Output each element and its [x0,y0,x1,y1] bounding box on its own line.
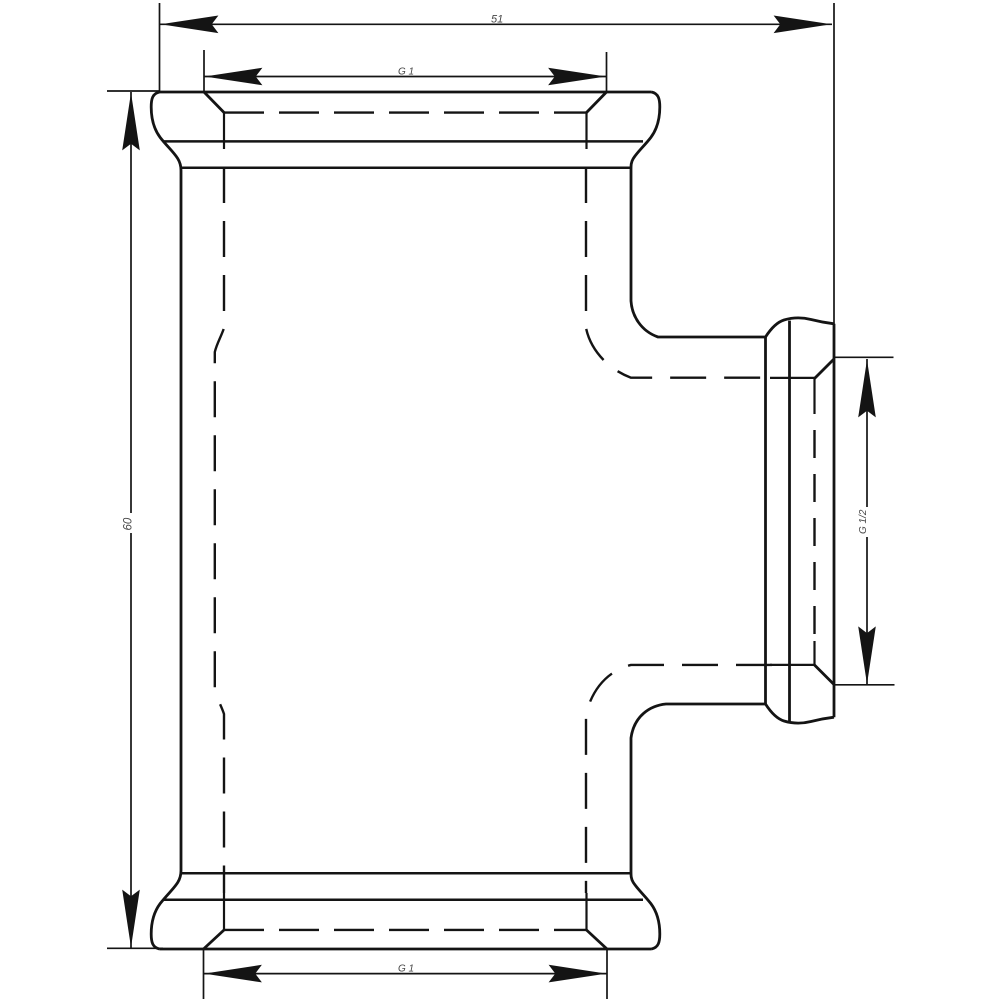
svg-text:51: 51 [491,14,503,26]
svg-text:60: 60 [123,517,135,530]
svg-text:G 1: G 1 [398,67,414,78]
svg-text:G 1: G 1 [398,964,414,975]
svg-text:G 1/2: G 1/2 [858,509,869,534]
